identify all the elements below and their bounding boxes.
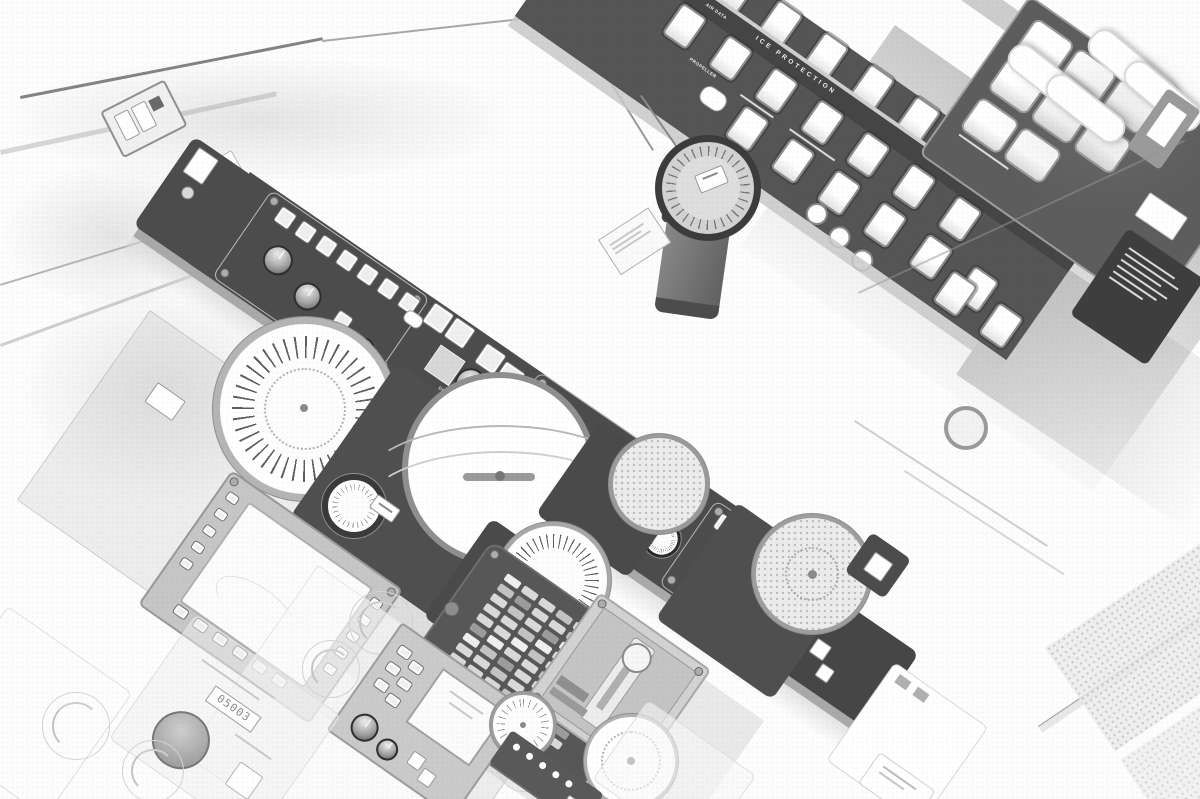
standby-compass: [655, 135, 761, 241]
radio-key: [384, 692, 403, 710]
bezel-key: [213, 507, 229, 523]
instrument-gauge: [609, 434, 709, 534]
cockpit-photo: AIR DATA ICE PROTECTION PROPELLER: [0, 0, 1200, 799]
radio-key: [395, 644, 414, 662]
radio-light: [416, 767, 437, 788]
bezel-key: [201, 523, 217, 539]
bezel-key: [178, 556, 194, 572]
mini-indicator-window: [863, 551, 894, 582]
screw: [268, 195, 281, 208]
engine-gauge: [302, 640, 360, 698]
indicator-dot: [538, 761, 548, 771]
round-light: [944, 406, 988, 450]
indicator-dot: [512, 742, 522, 752]
radio-key: [406, 659, 425, 677]
screw: [488, 548, 501, 561]
gauge-hub: [520, 722, 526, 728]
radio-knob: [372, 734, 403, 765]
indicator-dot: [564, 779, 574, 789]
faint-gauge: [122, 740, 184, 799]
unit-tab: [912, 687, 929, 703]
screw: [228, 476, 241, 489]
screw: [219, 267, 232, 280]
cabin-altitude-readout: 05003: [205, 685, 262, 733]
compass-base: [654, 297, 719, 320]
radio-key: [372, 676, 391, 694]
gauge-hub: [808, 570, 817, 579]
strip-window: [562, 795, 586, 799]
windshield-streak: [904, 470, 1064, 575]
bezel-key: [224, 490, 240, 506]
radio-key: [395, 675, 414, 693]
screw: [665, 574, 678, 587]
vent-latch: [148, 95, 164, 111]
radio-key: [384, 660, 403, 678]
faint-gauge: [42, 692, 110, 760]
indicator-dot: [525, 751, 535, 761]
indicator-dot: [551, 770, 561, 780]
gauge-hub: [300, 404, 308, 412]
unit-tab: [894, 674, 911, 690]
pressure-light: [225, 761, 264, 799]
bezel-key: [190, 540, 206, 556]
